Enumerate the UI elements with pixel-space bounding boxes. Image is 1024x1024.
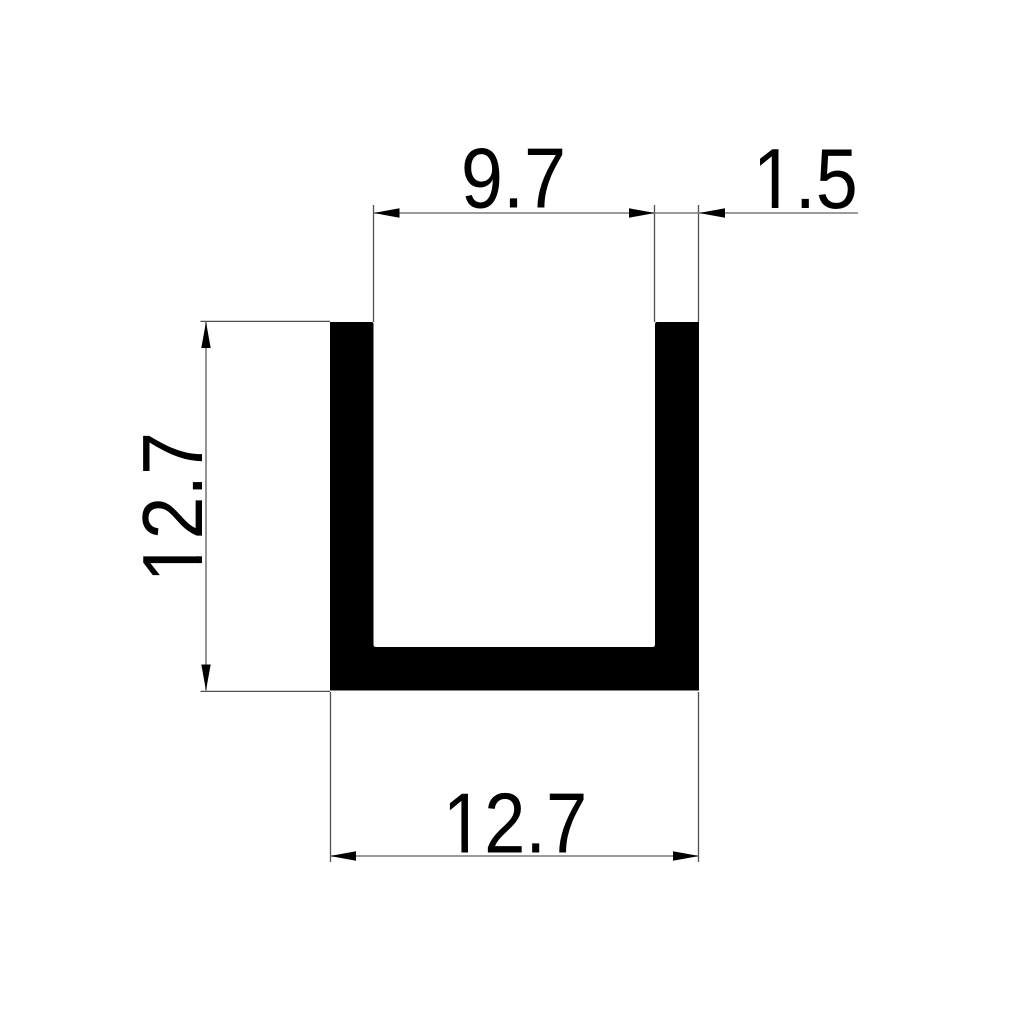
svg-text:12.7: 12.7 xyxy=(443,775,587,870)
svg-text:12.7: 12.7 xyxy=(125,432,220,583)
svg-text:1.5: 1.5 xyxy=(753,132,858,227)
svg-text:9.7: 9.7 xyxy=(461,131,566,226)
